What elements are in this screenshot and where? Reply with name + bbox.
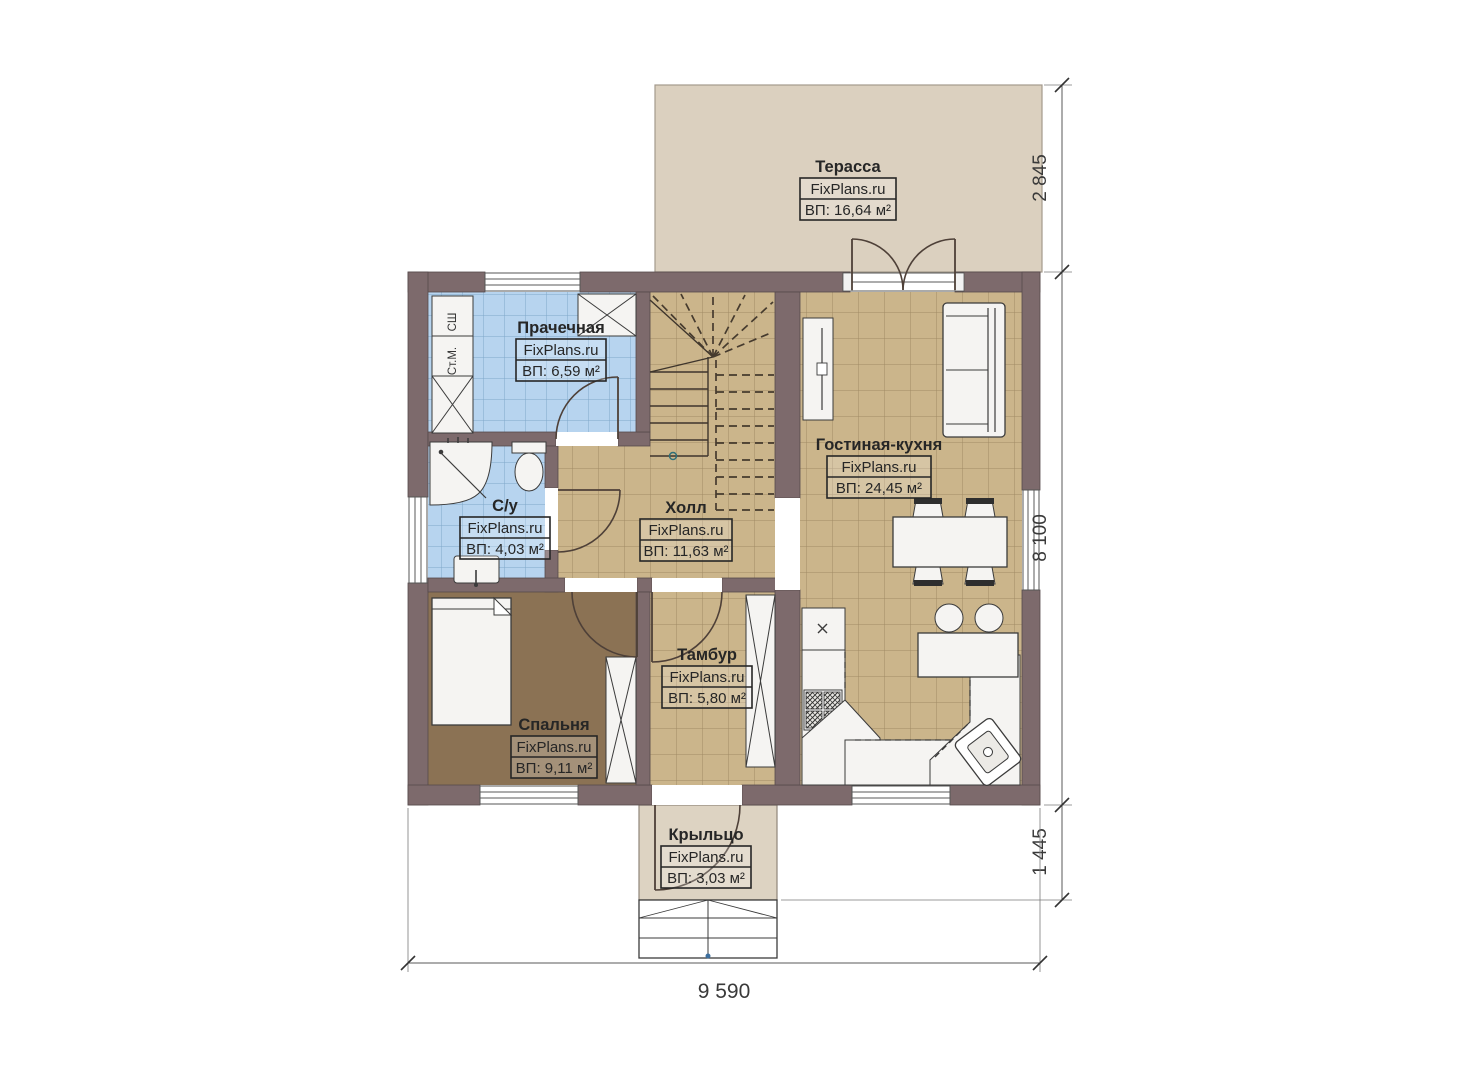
room-label-living-kitchen: Гостиная-кухня FixPlans.ru ВП: 24,45 м² — [816, 436, 942, 498]
vestibule-brand: FixPlans.ru — [669, 669, 744, 686]
bathroom-brand: FixPlans.ru — [467, 520, 542, 537]
hall-brand: FixPlans.ru — [648, 522, 723, 539]
bedroom-wardrobe — [606, 657, 636, 783]
dim-porch-depth: 1 445 — [1030, 828, 1051, 876]
hall-area: ВП: 11,63 м² — [643, 543, 728, 560]
room-label-bedroom: Спальня FixPlans.ru ВП: 9,11 м² — [511, 716, 597, 778]
bedroom-window — [480, 786, 578, 804]
room-label-porch: Крыльцо FixPlans.ru ВП: 3,03 м² — [661, 826, 751, 888]
tv-unit — [803, 318, 833, 420]
bedroom-area: ВП: 9,11 м² — [516, 760, 593, 777]
washer-unit: Ст.М. — [432, 336, 473, 376]
porch-steps — [639, 900, 777, 959]
bathroom-window — [409, 497, 427, 583]
kitchen-window — [852, 786, 950, 804]
bedroom-door-opening — [565, 578, 637, 592]
vestibule-name: Тамбур — [677, 646, 737, 664]
terrace-brand: FixPlans.ru — [810, 181, 885, 198]
dim-house-side: 8 100 — [1030, 514, 1051, 562]
bedroom-name: Спальня — [518, 716, 589, 734]
floor-plan-drawing: СШ Ст.М. — [0, 0, 1473, 1080]
room-label-laundry: Прачечная FixPlans.ru ВП: 6,59 м² — [516, 319, 606, 381]
porch-name: Крыльцо — [668, 826, 743, 844]
hall-name: Холл — [665, 499, 706, 517]
living-kitchen-area: ВП: 24,45 м² — [836, 480, 922, 497]
bathroom-sink — [454, 556, 499, 587]
sofa — [943, 303, 1005, 437]
laundry-cabinet — [432, 376, 473, 433]
terrace-area: ВП: 16,64 м² — [805, 202, 891, 219]
dim-terrace-depth: 2 845 — [1030, 154, 1051, 202]
bed — [432, 598, 511, 725]
laundry-window — [485, 273, 580, 291]
laundry-name: Прачечная — [517, 319, 604, 337]
terrace-name: Терасса — [815, 158, 881, 176]
living-kitchen-name: Гостиная-кухня — [816, 436, 942, 454]
dryer-label: СШ — [447, 313, 459, 332]
porch-area: ВП: 3,03 м² — [667, 870, 745, 887]
porch-brand: FixPlans.ru — [668, 849, 743, 866]
bathroom-area: ВП: 4,03 м² — [466, 541, 544, 558]
bathroom-name: С/у — [492, 497, 519, 515]
floor-plan-page: СШ Ст.М. — [0, 0, 1473, 1080]
entrance-door-opening — [652, 785, 742, 805]
bedroom-brand: FixPlans.ru — [516, 739, 591, 756]
living-kitchen-brand: FixPlans.ru — [841, 459, 916, 476]
dim-house-front: 9 590 — [698, 980, 751, 1003]
vestibule-area: ВП: 5,80 м² — [668, 690, 746, 707]
kitchen-fridge — [802, 608, 845, 650]
laundry-area: ВП: 6,59 м² — [522, 363, 600, 380]
washer-label: Ст.М. — [447, 347, 459, 375]
dryer-unit: СШ — [432, 296, 473, 336]
vestibule-door-opening — [652, 578, 722, 592]
laundry-brand: FixPlans.ru — [523, 342, 598, 359]
laundry-door-opening — [556, 432, 618, 446]
hall-kitchen-opening — [775, 498, 800, 590]
shower — [430, 437, 492, 505]
